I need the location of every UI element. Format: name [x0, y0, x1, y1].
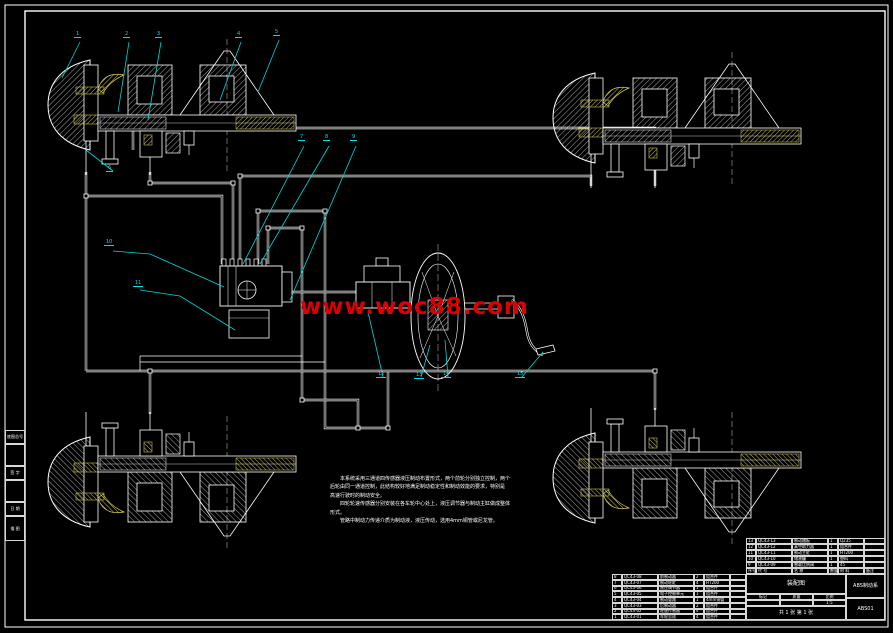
sheet-info: 共 1 张 第 1 张: [746, 606, 846, 620]
bom-cell: 1: [612, 614, 622, 620]
ecu-block: [229, 310, 269, 338]
bom-cell: 4: [694, 614, 704, 620]
note-line-3: 高速行驶时的制动安全。: [330, 492, 520, 500]
wheel-assembly-bottom-right: [553, 408, 801, 544]
bom-cell: [730, 614, 746, 620]
callout-label-7: 7: [298, 134, 305, 141]
cad-drawing-sheet: www.woc88.com 本系统采用三通道四传感器液压制动布置形式，两个前轮分…: [0, 0, 893, 633]
note-line-5: 形式。: [330, 509, 520, 517]
callout-label-10: 10: [104, 239, 114, 246]
note-line-1: 本系统采用三通道四传感器液压制动布置形式，两个前轮分别独立控制，两个: [330, 475, 520, 483]
frame-box-5: 日 期: [5, 502, 25, 516]
drawing-number: ABS01: [846, 598, 885, 620]
callout-label-15: 15: [515, 371, 525, 378]
bom-cell: QC43-01: [622, 614, 658, 620]
callout-label-5: 5: [273, 29, 280, 36]
callout-label-6: 6: [106, 165, 113, 172]
callout-label-3: 3: [155, 31, 162, 38]
frame-box-6: 描 图: [5, 516, 25, 541]
callout-label-11: 11: [133, 280, 143, 287]
frame-box-3: 签 字: [5, 466, 25, 480]
drawing-title: ABS制动系: [846, 574, 885, 598]
callout-label-9: 9: [350, 134, 357, 141]
note-line-4: 四轮轮速传感器分别安装在各车轮中心处上，液压调节器与制动主缸做成整体: [330, 500, 520, 508]
stage-cell: 装配图: [746, 574, 846, 594]
notes-block: 本系统采用三通道四传感器液压制动布置形式，两个前轮分别独立控制，两个后轮由同一通…: [330, 475, 520, 525]
frame-box-4: [5, 480, 25, 502]
callout-label-1: 1: [74, 31, 81, 38]
watermark-text: www.woc88.com: [300, 294, 529, 320]
note-line-2: 后轮由同一通道控制，此结构较好地满足制动稳定性和制动效能的要求，特别是: [330, 483, 520, 491]
callout-label-14: 14: [441, 371, 451, 378]
callout-label-4: 4: [235, 31, 242, 38]
frame-box-2: [5, 444, 25, 466]
abs-hydraulic-unit: [220, 259, 292, 306]
callout-label-13: 13: [414, 372, 424, 379]
bom-cell: 组合件: [704, 614, 730, 620]
frame-box-1: 底图总号: [5, 430, 25, 444]
wheel-assembly-bottom-left: [48, 412, 296, 548]
bom-cell: 车轮总成: [658, 614, 694, 620]
title-block: 13QC43-13制动踏板1Q23512QC43-12真空助力器1组合件11QC…: [612, 538, 885, 620]
callout-label-8: 8: [323, 134, 330, 141]
wheel-assembly-top-left: [48, 39, 296, 175]
frame-left-boxes: 底图总号签 字日 期描 图: [5, 430, 25, 541]
note-line-6: 管路中制动力传递介质为制动液，液压传动，选用4mm铜管或尼龙管。: [330, 517, 520, 525]
callout-label-2: 2: [123, 31, 130, 38]
callout-label-12: 12: [376, 371, 386, 378]
wheel-assembly-top-right: [553, 52, 801, 188]
